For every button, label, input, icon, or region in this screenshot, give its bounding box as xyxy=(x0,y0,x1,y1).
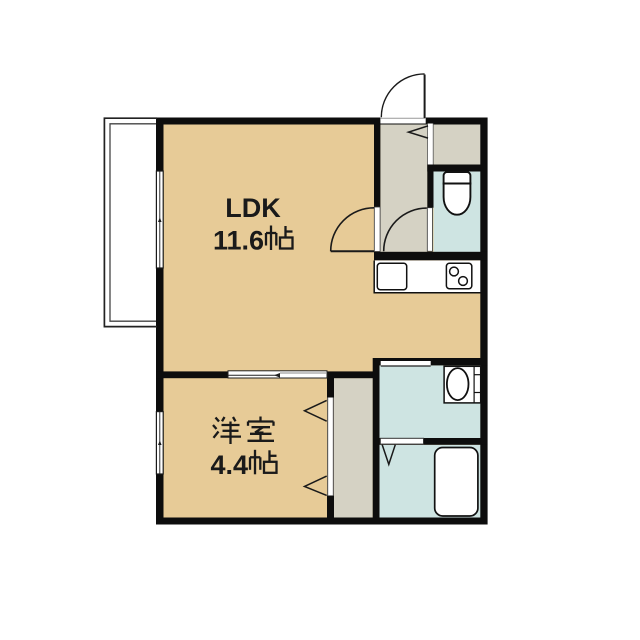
svg-text:4.4: 4.4 xyxy=(210,450,248,480)
svg-text:LDK: LDK xyxy=(225,193,281,223)
svg-text:11.6: 11.6 xyxy=(213,226,264,256)
